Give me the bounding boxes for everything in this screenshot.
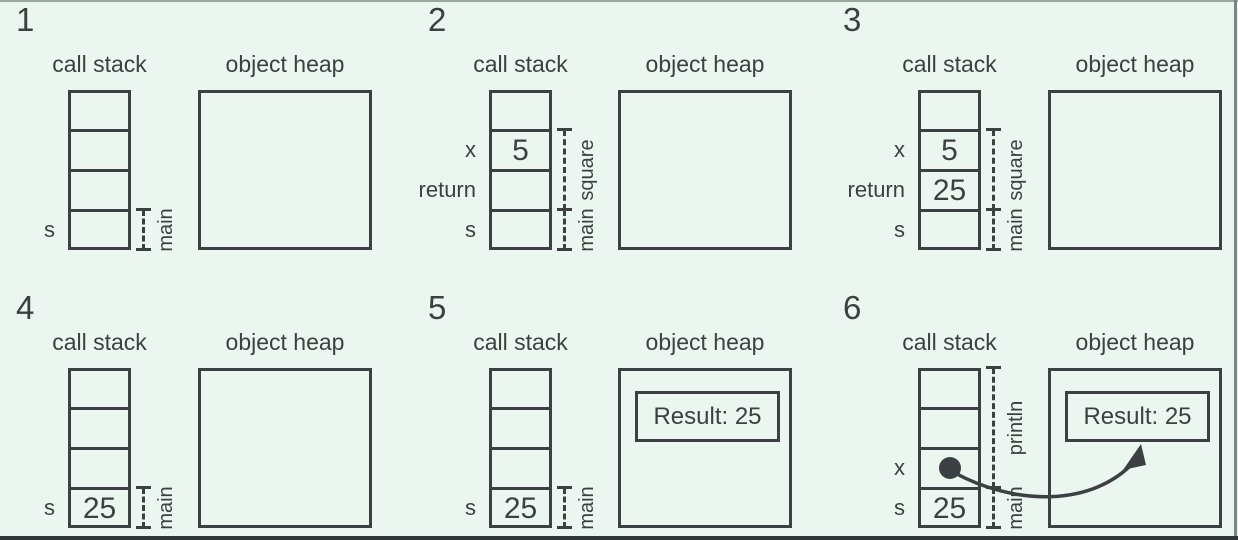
frame-bracket: [563, 210, 566, 250]
stack-cell-divider: [71, 407, 128, 410]
bracket-cap: [557, 248, 572, 251]
heap-object-box: Result: 25: [635, 391, 780, 442]
bracket-label: square: [1005, 139, 1027, 200]
object-heap-title: object heap: [175, 51, 395, 77]
cell-label: s: [393, 210, 483, 250]
frame-bracket: [563, 488, 566, 528]
cell-label: s: [0, 210, 62, 250]
object-heap-title: object heap: [595, 51, 815, 77]
panel-number: 4: [16, 290, 34, 326]
cell-value: 25: [918, 170, 981, 210]
bracket-cap: [136, 526, 151, 529]
bracket-cap: [986, 208, 1001, 211]
panel-number: 5: [428, 290, 446, 326]
cell-value: 25: [918, 488, 981, 528]
panel-number: 6: [843, 290, 861, 326]
heap-object-box: Result: 25: [1065, 391, 1210, 442]
bracket-label: main: [155, 208, 177, 251]
cell-label: x: [822, 448, 912, 488]
bracket-label: main: [155, 486, 177, 529]
bracket-label: main: [576, 486, 598, 529]
bracket-cap: [136, 208, 151, 211]
frame-bracket: [142, 210, 145, 250]
bracket-cap: [557, 486, 572, 489]
heap-object-text: Result: 25: [1068, 394, 1207, 439]
cell-label: s: [822, 488, 912, 528]
stack-cell-divider: [492, 209, 549, 212]
object-heap: [618, 90, 792, 250]
frame-bracket: [992, 368, 995, 488]
object-heap: [198, 368, 372, 528]
stack-cell-divider: [71, 447, 128, 450]
window-border-bottom: [0, 536, 1238, 540]
object-heap-title: object heap: [1025, 51, 1238, 77]
panel-number: 3: [843, 2, 861, 38]
window-border-right: [1234, 0, 1237, 540]
cell-value: 25: [68, 488, 131, 528]
bracket-label: println: [1005, 401, 1027, 455]
object-heap-title: object heap: [175, 329, 395, 355]
object-heap-title: object heap: [1025, 329, 1238, 355]
object-heap: [198, 90, 372, 250]
stack-cell-divider: [71, 129, 128, 132]
panel-number: 1: [16, 2, 34, 38]
object-heap-title: object heap: [595, 329, 815, 355]
cell-label: s: [393, 488, 483, 528]
window-border-top: [0, 0, 1238, 2]
stack-cell-divider: [492, 447, 549, 450]
stack-cell-divider: [921, 447, 978, 450]
cell-value: 5: [489, 130, 552, 170]
figure-canvas: 1call stackobject heapsmain2call stackob…: [0, 0, 1238, 540]
bracket-cap: [136, 248, 151, 251]
bracket-cap: [986, 366, 1001, 369]
stack-cell-divider: [921, 407, 978, 410]
bracket-cap: [136, 486, 151, 489]
panel-number: 2: [428, 2, 446, 38]
cell-label: return: [393, 170, 483, 210]
stack-cell-divider: [492, 407, 549, 410]
frame-bracket: [992, 488, 995, 528]
bracket-cap: [557, 526, 572, 529]
bracket-cap: [986, 526, 1001, 529]
bracket-label: square: [576, 139, 598, 200]
cell-label: x: [393, 130, 483, 170]
frame-bracket: [563, 130, 566, 210]
cell-label: return: [822, 170, 912, 210]
bracket-cap: [557, 128, 572, 131]
bracket-cap: [557, 208, 572, 211]
bracket-label: main: [1005, 486, 1027, 529]
stack-cell-divider: [71, 209, 128, 212]
reference-dot: [939, 457, 961, 479]
heap-object-text: Result: 25: [638, 394, 777, 439]
bracket-cap: [986, 128, 1001, 131]
call-stack: [68, 90, 131, 250]
bracket-cap: [986, 486, 1001, 489]
stack-cell-divider: [71, 169, 128, 172]
bracket-label: main: [576, 208, 598, 251]
frame-bracket: [142, 488, 145, 528]
frame-bracket: [992, 210, 995, 250]
bracket-cap: [986, 248, 1001, 251]
bracket-label: main: [1005, 208, 1027, 251]
cell-label: s: [0, 488, 62, 528]
object-heap: [1048, 90, 1222, 250]
frame-bracket: [992, 130, 995, 210]
cell-value: 5: [918, 130, 981, 170]
cell-label: x: [822, 130, 912, 170]
cell-value: 25: [489, 488, 552, 528]
cell-label: s: [822, 210, 912, 250]
